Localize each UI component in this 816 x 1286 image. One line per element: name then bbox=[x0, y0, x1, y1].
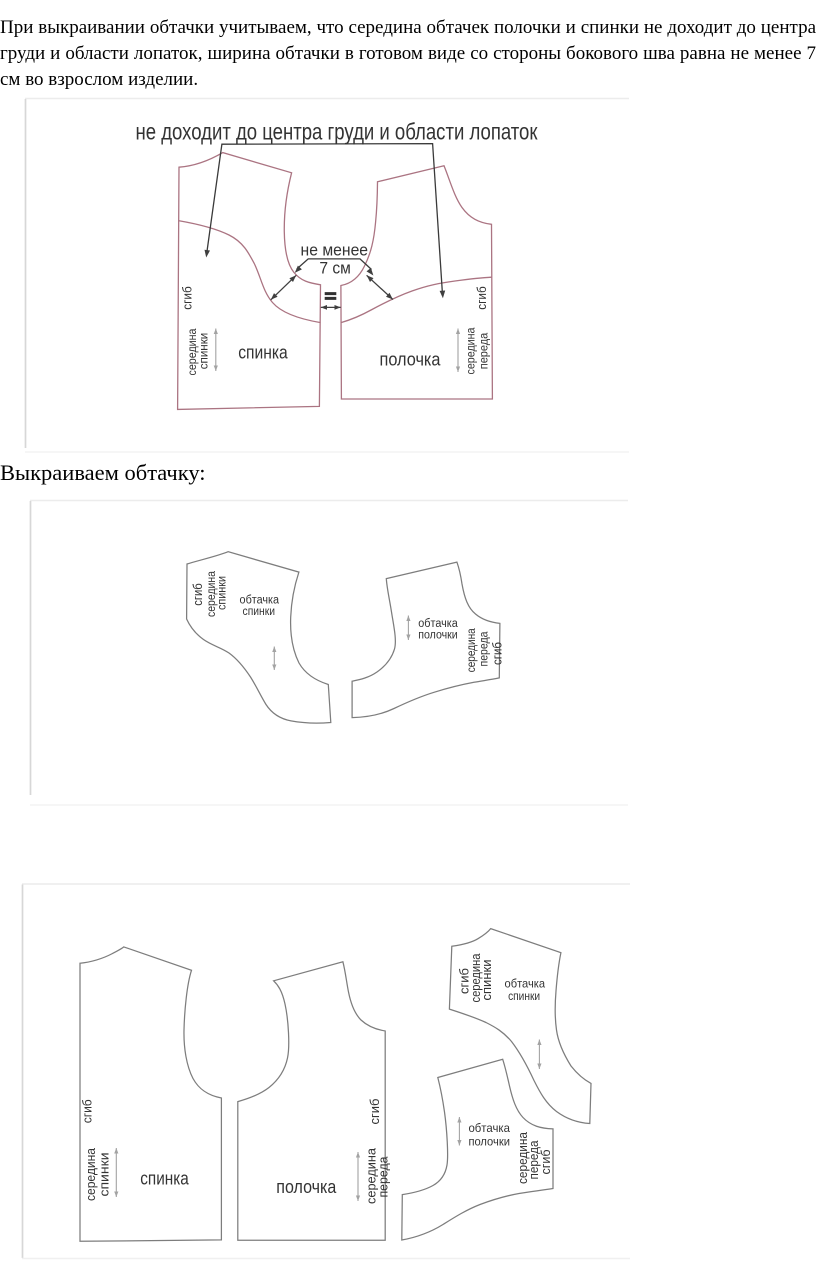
svg-text:сгиб: сгиб bbox=[475, 286, 489, 310]
svg-text:сгиб: сгиб bbox=[367, 1099, 382, 1125]
svg-text:спинки: спинки bbox=[215, 576, 229, 610]
svg-text:сгиб: сгиб bbox=[180, 286, 194, 310]
svg-text:переда: переда bbox=[478, 332, 490, 369]
svg-text:сгиб: сгиб bbox=[190, 583, 205, 606]
svg-text:спинки: спинки bbox=[199, 333, 211, 370]
svg-text:спинки: спинки bbox=[97, 1152, 111, 1196]
svg-text:обтачка: обтачка bbox=[468, 1121, 510, 1135]
svg-text:переда: переда bbox=[375, 1156, 390, 1198]
svg-text:полочки: полочки bbox=[468, 1135, 510, 1149]
svg-text:спинки: спинки bbox=[480, 959, 494, 1000]
svg-text:обтачка: обтачка bbox=[418, 618, 458, 630]
svg-text:не доходит до центра груди и о: не доходит до центра груди и области лоп… bbox=[136, 118, 539, 144]
svg-text:спинка: спинка bbox=[140, 1168, 189, 1189]
svg-text:полочка: полочка bbox=[380, 349, 442, 370]
svg-text:переда: переда bbox=[477, 631, 491, 666]
svg-text:спинка: спинка bbox=[238, 342, 288, 363]
svg-text:7 см: 7 см bbox=[319, 260, 351, 278]
svg-text:сгиб: сгиб bbox=[490, 642, 504, 665]
svg-text:сгиб: сгиб bbox=[81, 1099, 95, 1123]
svg-text:не менее: не менее bbox=[301, 242, 369, 260]
svg-text:обтачка: обтачка bbox=[240, 594, 280, 606]
svg-text:середина: середина bbox=[465, 327, 477, 375]
svg-text:спинки: спинки bbox=[508, 989, 540, 1003]
svg-text:полочки: полочки bbox=[418, 630, 458, 642]
svg-text:сгиб: сгиб bbox=[539, 1150, 553, 1175]
svg-text:середина: середина bbox=[84, 1148, 98, 1201]
svg-text:спинки: спинки bbox=[243, 606, 276, 618]
svg-text:середина: середина bbox=[187, 328, 199, 376]
svg-text:полочка: полочка bbox=[276, 1176, 337, 1197]
